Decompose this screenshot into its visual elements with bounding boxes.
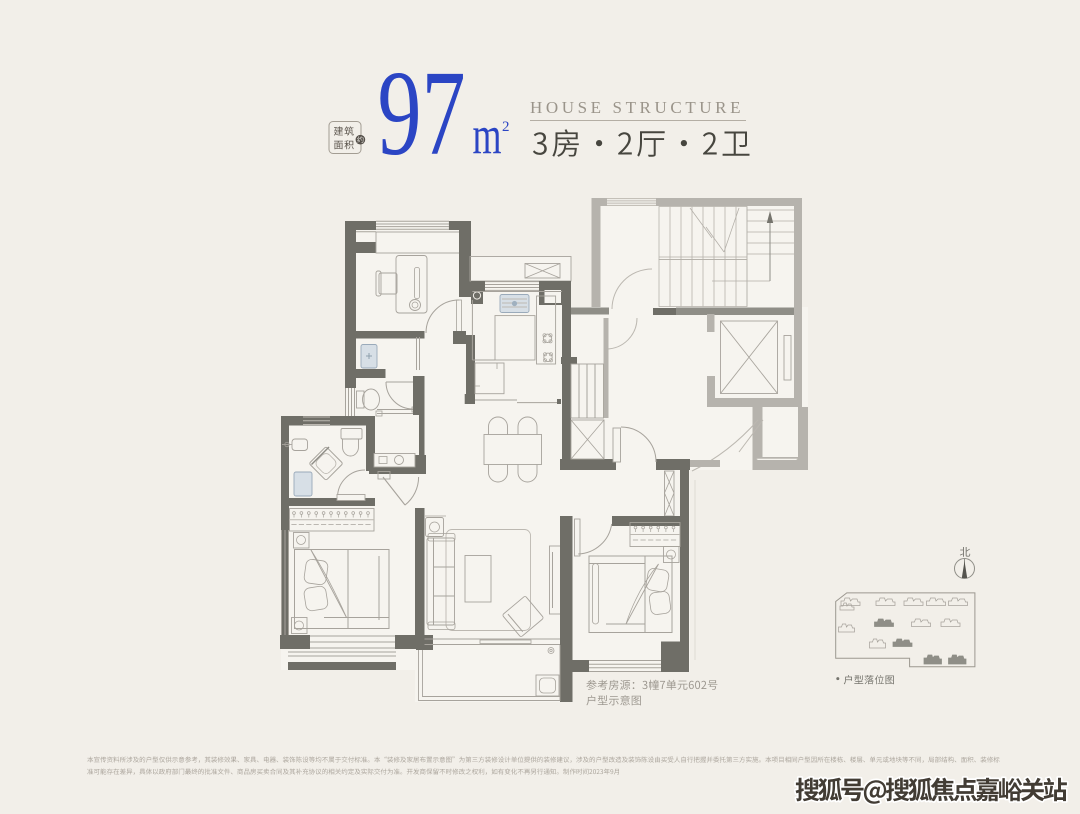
svg-text:97: 97 xyxy=(378,46,466,181)
svg-text:2: 2 xyxy=(502,119,510,135)
svg-text:HOUSE STRUCTURE: HOUSE STRUCTURE xyxy=(530,98,744,117)
svg-text:m: m xyxy=(473,106,502,166)
